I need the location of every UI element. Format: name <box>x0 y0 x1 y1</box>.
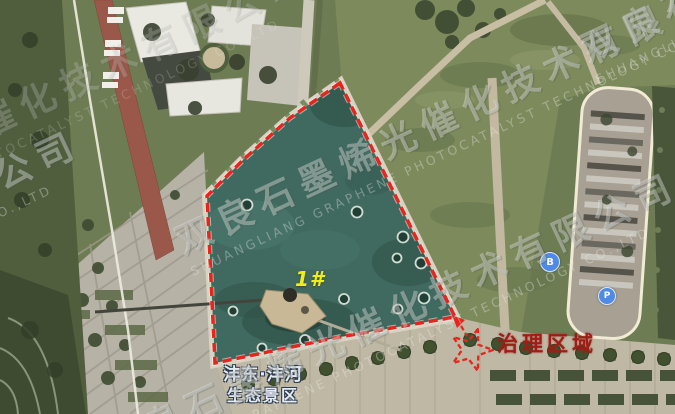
aerial-scene <box>0 0 675 414</box>
parking-lot <box>566 86 675 340</box>
pavilion <box>283 288 297 302</box>
courtyard-fountain <box>201 45 227 71</box>
satellite-map: 1# 治理区域 沣东·沣河 生态景区 B P 双良石墨烯光催化技术有限公司 SH… <box>0 0 675 414</box>
